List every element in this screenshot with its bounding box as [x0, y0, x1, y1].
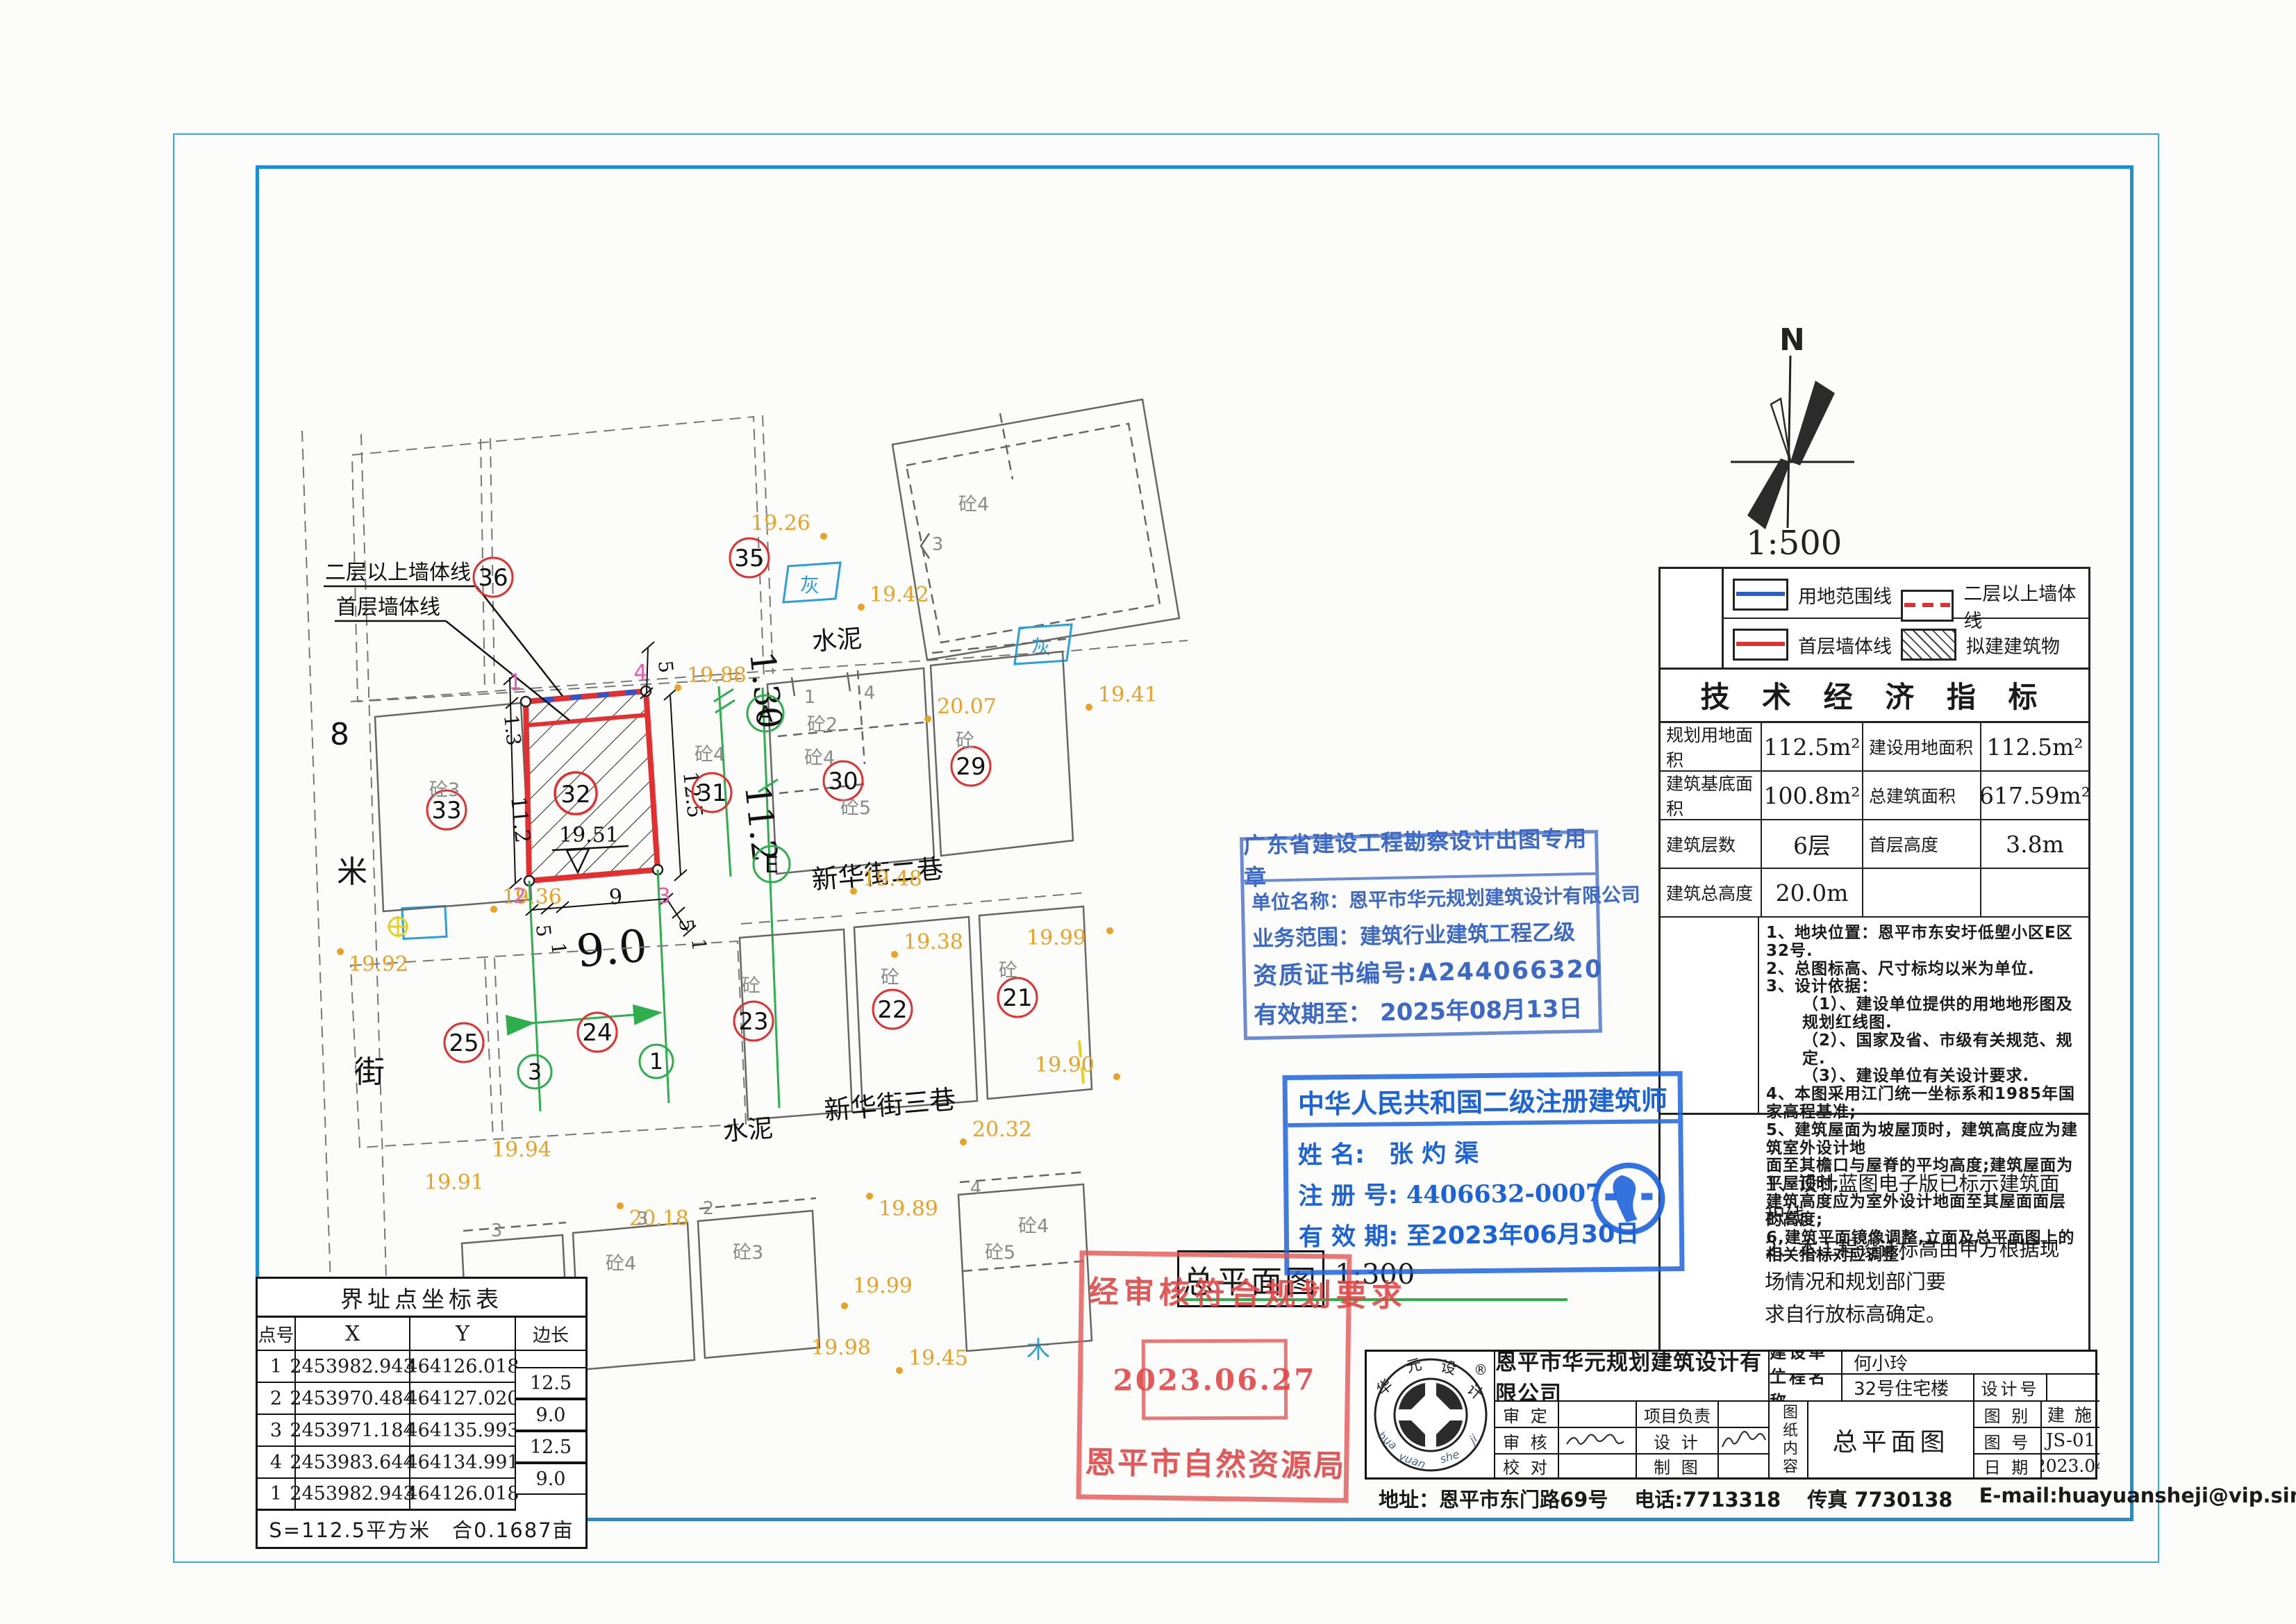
street-8m-char2: 米 [337, 854, 367, 890]
svg-text:元: 元 [1404, 1356, 1423, 1377]
building-topright [892, 399, 1179, 660]
svg-text:30: 30 [828, 768, 858, 795]
label-client: 建设单位 [1770, 1352, 1842, 1375]
svg-text:A: A [758, 701, 773, 727]
ind-r3k1: 建筑层数 [1661, 820, 1762, 869]
tree-marker: 木 [1026, 1336, 1050, 1364]
tubie-value: 建 施 [2042, 1402, 2099, 1428]
svg-text:19.45: 19.45 [908, 1346, 968, 1370]
label-tubie: 图 别 [1974, 1402, 2042, 1428]
svg-text:3: 3 [657, 884, 670, 909]
ind-r1v2: 112.5m² [1981, 723, 2088, 772]
ind-r1v1: 112.5m² [1762, 723, 1863, 772]
jiaodui-value [1559, 1455, 1637, 1477]
coord-cell: 464127.020 [410, 1383, 516, 1415]
notes-divider [1758, 918, 1759, 1113]
coord-footer: S=112.5平方米 合0.1687亩 [258, 1511, 585, 1547]
coord-table-title: 界址点坐标表 [258, 1279, 585, 1318]
svg-text:砼5: 砼5 [985, 1242, 1015, 1263]
street-lane3: 新华街三巷 [823, 1084, 957, 1126]
dim-1-br: 1 [687, 937, 711, 952]
note-line: （2）、国家及省、市级有关规范、规定. [1766, 1032, 2080, 1068]
coord-edge: 9.0 [516, 1399, 585, 1431]
company-phone: 电话:7713318 [1634, 1484, 1781, 1513]
svg-text:砼: 砼 [999, 960, 1017, 981]
svg-text:设: 设 [1438, 1357, 1457, 1378]
plot-29 [931, 639, 1073, 856]
stamp2-reg-label: 注 册 号: [1298, 1182, 1398, 1210]
dim-5-bl: 5 [531, 923, 556, 938]
architect-seal-icon [1588, 1158, 1670, 1239]
legend-label-upperwall: 二层以上墙体线 [1963, 579, 2088, 633]
drawing-sheet: 灰 灰 木 [0, 0, 2296, 1624]
spot-level: 19.51 [559, 823, 619, 847]
ind-r4k2-empty [1863, 869, 1981, 918]
ind-r1k1: 规划用地面积 [1661, 723, 1762, 772]
client-name: 何小玲 [1842, 1352, 2099, 1375]
svg-text:19.90: 19.90 [1035, 1053, 1095, 1077]
upper-wall-symbol [1901, 590, 1954, 622]
svg-text:19.38: 19.38 [904, 930, 963, 954]
legend-item-boundary: 用地范围线 [1733, 579, 1892, 611]
svg-text:24: 24 [582, 1019, 612, 1047]
shending-value [1559, 1402, 1637, 1428]
coord-h-y: Y [410, 1318, 516, 1351]
svg-text:砼: 砼 [881, 967, 899, 988]
svg-text:4: 4 [633, 661, 647, 685]
note-line: 1、地块位置：恩平市东安圩低塱小区E区32号. [1766, 925, 2080, 961]
coord-h-point: 点号 [258, 1318, 296, 1351]
svg-text:19.41: 19.41 [1098, 683, 1158, 707]
svg-text:19.91: 19.91 [424, 1170, 484, 1195]
ind-r3v2: 3.8m [1981, 820, 2088, 869]
zhitu-value [1719, 1455, 1770, 1477]
stamp-red-date: 2023.06.27 [1142, 1339, 1288, 1420]
leader-upper-label: 二层以上墙体线 [325, 561, 471, 585]
label-riqi: 日 期 [1974, 1455, 2042, 1477]
stamp1-line4: 有效期至： 2025年08月13日 [1247, 989, 1599, 1031]
company-logo-cell: 华 元 设 计 ® hua yuan she ji [1367, 1352, 1495, 1477]
street-8m-char1: 8 [330, 717, 349, 752]
svg-text:砼3: 砼3 [429, 779, 460, 801]
north-label: N [1779, 322, 1805, 358]
dim-9: 9 [608, 884, 624, 910]
dim-1-bl: 1 [547, 941, 571, 956]
svg-text:31: 31 [697, 779, 726, 807]
coord-cell: 2453982.943 [296, 1351, 410, 1383]
stamp1-title: 广东省建设工程勘察设计出图专用章 [1243, 834, 1595, 883]
svg-text:4: 4 [864, 683, 876, 704]
note-line: 3、设计依据： [1766, 978, 2080, 996]
coord-edge: 12.5 [516, 1367, 585, 1399]
svg-text:3: 3 [637, 1209, 649, 1229]
legend-label-boundary: 用地范围线 [1798, 581, 1892, 608]
indicators-title: 技 术 经 济 指 标 [1661, 669, 2088, 721]
svg-text:36: 36 [478, 564, 508, 592]
riqi-value: 2023.04 [2042, 1455, 2099, 1477]
ind-r2v1: 100.8m² [1762, 772, 1863, 820]
note2-line: 2、本工程设计标高由甲方根据现场情况和规划部门要 [1765, 1233, 2079, 1298]
svg-text:砼2: 砼2 [807, 714, 838, 736]
ind-r3v1: 6层 [1762, 820, 1863, 869]
svg-text:砼4: 砼4 [958, 494, 989, 515]
stamp2-name: 张 灼 渠 [1389, 1140, 1479, 1168]
coord-cell: 2453983.644 [296, 1447, 410, 1479]
ind-r4v1: 20.0m [1762, 869, 1863, 918]
plot-row-c [351, 893, 1092, 1147]
xiangmu-value [1719, 1402, 1770, 1428]
ground-wall-symbol [1733, 629, 1788, 661]
svg-text:砼4: 砼4 [804, 747, 835, 769]
svg-text:23: 23 [738, 1008, 768, 1036]
svg-text:4: 4 [970, 1178, 982, 1199]
coord-cell: 464134.991 [410, 1447, 516, 1479]
svg-text:砼: 砼 [742, 975, 760, 997]
street-cement-top: 水泥 [811, 624, 863, 656]
svg-text:E: E [765, 852, 779, 878]
stamp2-name-label: 姓 名: [1298, 1141, 1365, 1170]
svg-text:19.88: 19.88 [687, 663, 747, 688]
stamp-design-license: 广东省建设工程勘察设计出图专用章 单位名称：恩平市华元规划建筑设计有限公司 业务… [1240, 830, 1602, 1041]
label-shending: 审 定 [1495, 1402, 1559, 1428]
shenhe-signature [1559, 1428, 1637, 1455]
note2-line: 1、设计蓝图电子版已标示建筑面积线。 [1765, 1168, 2079, 1233]
svg-text:1: 1 [649, 1048, 663, 1075]
main-scale: 1:500 [1746, 524, 1842, 559]
coord-cell: 464135.993 [410, 1415, 516, 1447]
label-tuhao: 图 号 [1974, 1428, 2042, 1455]
note-line: （1）、建设单位提供的用地地形图及规划红线图. [1766, 996, 2080, 1032]
street-cement-bottom: 水泥 [722, 1114, 774, 1147]
note-line: 2、总图标高、尺寸标均以米为单位. [1766, 961, 2080, 979]
gray-marker-1: 灰 [800, 574, 820, 597]
notes-bottom-line [1661, 1113, 2088, 1115]
coord-edge: 12.5 [516, 1431, 585, 1463]
coordinate-table: 界址点坐标表 点号 X Y 边长 1 2453982.943 464126.01… [256, 1277, 588, 1549]
tuhao-value: JS-01 [2042, 1428, 2099, 1455]
svg-text:砼4: 砼4 [606, 1253, 636, 1275]
dim-5-top: 5 [654, 659, 678, 674]
stamp2-valid-label: 有 效 期: [1299, 1223, 1399, 1251]
coord-cell: 2453982.943 [296, 1479, 410, 1511]
svg-text:3: 3 [528, 1059, 542, 1085]
svg-text:19.98: 19.98 [811, 1336, 871, 1360]
design-no-value [2047, 1375, 2099, 1402]
svg-text:1: 1 [508, 670, 522, 695]
street-8m-char3: 街 [354, 1054, 385, 1090]
company-name: 恩平市华元规划建筑设计有限公司 [1495, 1352, 1770, 1402]
coord-edge: 9.0 [516, 1463, 585, 1495]
ind-r4k1: 建筑总高度 [1661, 869, 1762, 918]
svg-text:19.42: 19.42 [870, 583, 929, 607]
svg-text:3: 3 [491, 1220, 503, 1241]
ind-r4v2-empty [1981, 869, 2088, 918]
address-line: 地址：恩平市东门路69号 电话:7713318 传真 7730138 E-mai… [1379, 1484, 2122, 1513]
plot-32-subject: 19.51 [521, 686, 663, 886]
label-project: 工程名称 [1770, 1375, 1842, 1402]
leader-lower-label: 首层墙体线 [336, 595, 440, 620]
svg-text:19.48: 19.48 [863, 867, 922, 891]
svg-text:22: 22 [877, 996, 907, 1024]
coord-cell: 464126.018 [410, 1479, 516, 1511]
legend-label-proposed: 拟建建筑物 [1966, 631, 2060, 658]
proposed-building-symbol [1901, 629, 1956, 661]
note-line: 5、建筑屋面为坡屋顶时，建筑高度应为建筑室外设计地 [1766, 1122, 2080, 1158]
legend-item-proposed: 拟建建筑物 [1901, 629, 2060, 661]
north-arrow: N 1:500 [1710, 320, 1877, 559]
project-name: 32号住宅楼 [1842, 1375, 1974, 1402]
boundary-line-symbol [1733, 579, 1788, 611]
svg-text:砼3: 砼3 [733, 1242, 763, 1263]
coord-h-edge: 边长 [516, 1318, 585, 1351]
svg-text:33: 33 [431, 797, 461, 825]
ind-r3k2: 首层高度 [1863, 820, 1981, 869]
svg-text:19.26: 19.26 [751, 511, 810, 536]
ind-r2k2: 总建筑面积 [1863, 772, 1981, 820]
label-design-no: 设计号 [1974, 1375, 2047, 1402]
company-address: 地址：恩平市东门路69号 [1379, 1484, 1608, 1513]
note-line: 4、本图采用江门统一坐标系和1985年国家高程基准; [1766, 1086, 2080, 1122]
svg-text:砼4: 砼4 [694, 744, 725, 765]
svg-text:hua: hua [1375, 1428, 1399, 1452]
company-fax: 传真 7730138 [1807, 1484, 1952, 1513]
right-panel: 用地范围线 二层以上墙体线 首层墙体线 拟建建筑物 技 术 经 济 指 标 规划… [1658, 567, 2090, 1354]
svg-text:19.92: 19.92 [349, 952, 408, 977]
stamp1-line3: 资质证书编号:A244066320 [1246, 950, 1598, 993]
svg-text:砼5: 砼5 [840, 797, 871, 819]
svg-text:25: 25 [449, 1029, 479, 1057]
ind-r2k1: 建筑基底面积 [1661, 772, 1762, 820]
stamp2-title: 中华人民共和国二级注册建筑师 [1288, 1076, 1679, 1127]
label-xiangmu: 项目负责 [1637, 1402, 1719, 1428]
svg-text:20.07: 20.07 [937, 695, 997, 719]
stamp-red-org: 恩平市自然资源局 [1083, 1437, 1349, 1485]
stamp-architect: 中华人民共和国二级注册建筑师 姓 名: 张 灼 渠 注 册 号: 4406632… [1283, 1071, 1685, 1275]
label-sheji: 设 计 [1637, 1428, 1719, 1455]
svg-text:华: 华 [1373, 1376, 1396, 1399]
coord-cell: 464126.018 [410, 1351, 516, 1383]
drawing-content: 总平面图 [1808, 1402, 1974, 1477]
svg-text:砼: 砼 [956, 730, 974, 752]
legend-item-groundwall: 首层墙体线 [1733, 629, 1892, 661]
legend-label-groundwall: 首层墙体线 [1798, 631, 1892, 658]
svg-text:32: 32 [560, 781, 590, 809]
svg-text:19.94: 19.94 [492, 1138, 551, 1162]
svg-text:砼4: 砼4 [1018, 1216, 1049, 1237]
note-line: （3）、建设单位有关设计要求. [1766, 1068, 2080, 1086]
stamp-red-line1: 经审核符合规划要求 [1088, 1266, 1407, 1315]
coord-h-x: X [296, 1318, 410, 1351]
svg-text:20.32: 20.32 [972, 1118, 1032, 1142]
stamp2-reg: 4406632-0007 [1406, 1179, 1603, 1209]
coord-cell: 2453971.184 [296, 1415, 410, 1447]
dim-11-2: 11.2 [506, 795, 535, 844]
ind-r2v2: 617.59m² [1981, 772, 2088, 820]
svg-text:19.89: 19.89 [879, 1197, 938, 1221]
label-content: 图纸内容 [1770, 1402, 1808, 1477]
svg-text:®: ® [1474, 1361, 1488, 1378]
label-jiaodui: 校 对 [1495, 1455, 1559, 1477]
legend-divider-v [1722, 569, 1724, 669]
stamp-approval: 经审核符合规划要求 2023.06.27 恩平市自然资源局 [1076, 1250, 1352, 1502]
dim-1-3: 1.3 [499, 713, 525, 747]
svg-text:19.99: 19.99 [1026, 926, 1086, 950]
legend-item-upperwall: 二层以上墙体线 [1901, 579, 2088, 633]
note2-line: 求自行放标高确定。 [1765, 1298, 2079, 1331]
svg-text:计: 计 [1463, 1380, 1486, 1403]
company-email: E-mail:huayuansheji@vip.sina.com [1979, 1484, 2296, 1513]
svg-text:35: 35 [734, 545, 764, 572]
huayuan-logo-icon: 华 元 设 计 ® hua yuan she ji [1370, 1354, 1492, 1476]
notes2-block: 1、设计蓝图电子版已标示建筑面积线。 2、本工程设计标高由甲方根据现场情况和规划… [1765, 1168, 2079, 1331]
svg-text:1: 1 [804, 687, 816, 708]
svg-text:21: 21 [1002, 984, 1032, 1012]
svg-text:3: 3 [932, 534, 944, 555]
svg-text:29: 29 [956, 753, 985, 781]
label-zhitu: 制 图 [1637, 1455, 1719, 1477]
svg-text:19.36: 19.36 [502, 885, 562, 909]
title-block: 华 元 设 计 ® hua yuan she ji 恩平市华元规划建筑设计有限公… [1365, 1350, 2097, 1480]
label-shenhe: 审 核 [1495, 1428, 1559, 1455]
ind-r1k2: 建设用地面积 [1863, 723, 1981, 772]
svg-text:2: 2 [703, 1198, 715, 1219]
sheji-signature [1719, 1428, 1770, 1455]
coord-cell: 2453970.484 [296, 1383, 410, 1415]
svg-text:19.99: 19.99 [853, 1274, 913, 1298]
stamp1-line2: 业务范围：建筑行业建筑工程乙级 [1245, 914, 1597, 953]
dim-5-br: 5 [674, 918, 699, 932]
